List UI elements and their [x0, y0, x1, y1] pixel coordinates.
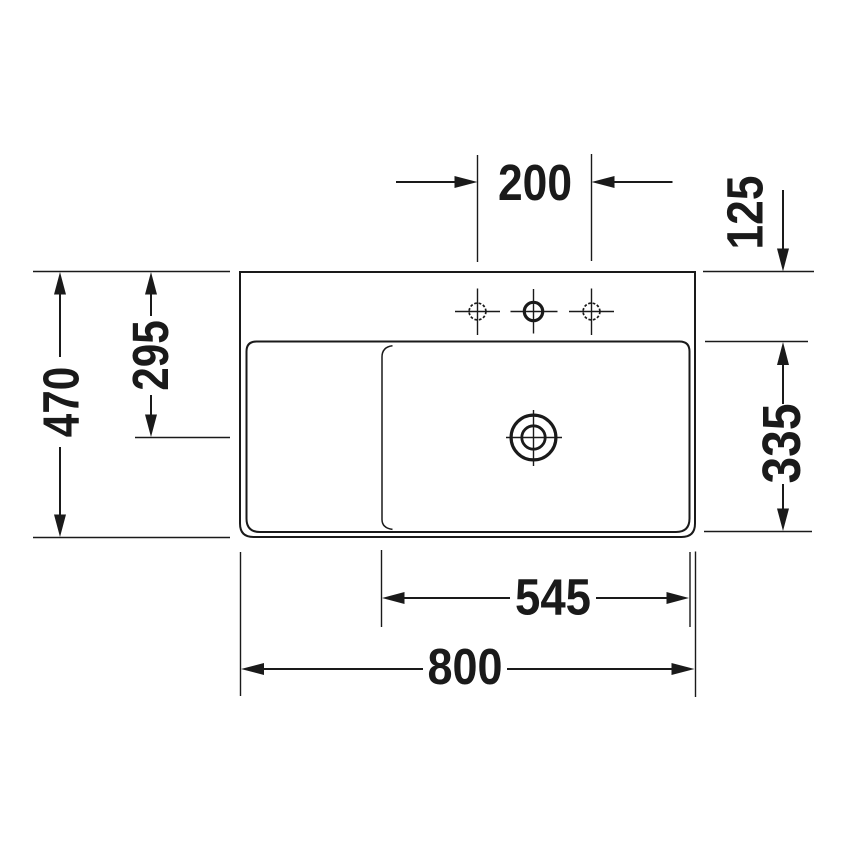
svg-text:800: 800	[428, 638, 503, 695]
svg-text:200: 200	[498, 154, 572, 211]
svg-text:335: 335	[752, 404, 812, 484]
svg-text:470: 470	[33, 367, 90, 438]
svg-text:295: 295	[122, 320, 179, 391]
svg-text:545: 545	[515, 569, 591, 626]
svg-text:125: 125	[717, 176, 774, 250]
